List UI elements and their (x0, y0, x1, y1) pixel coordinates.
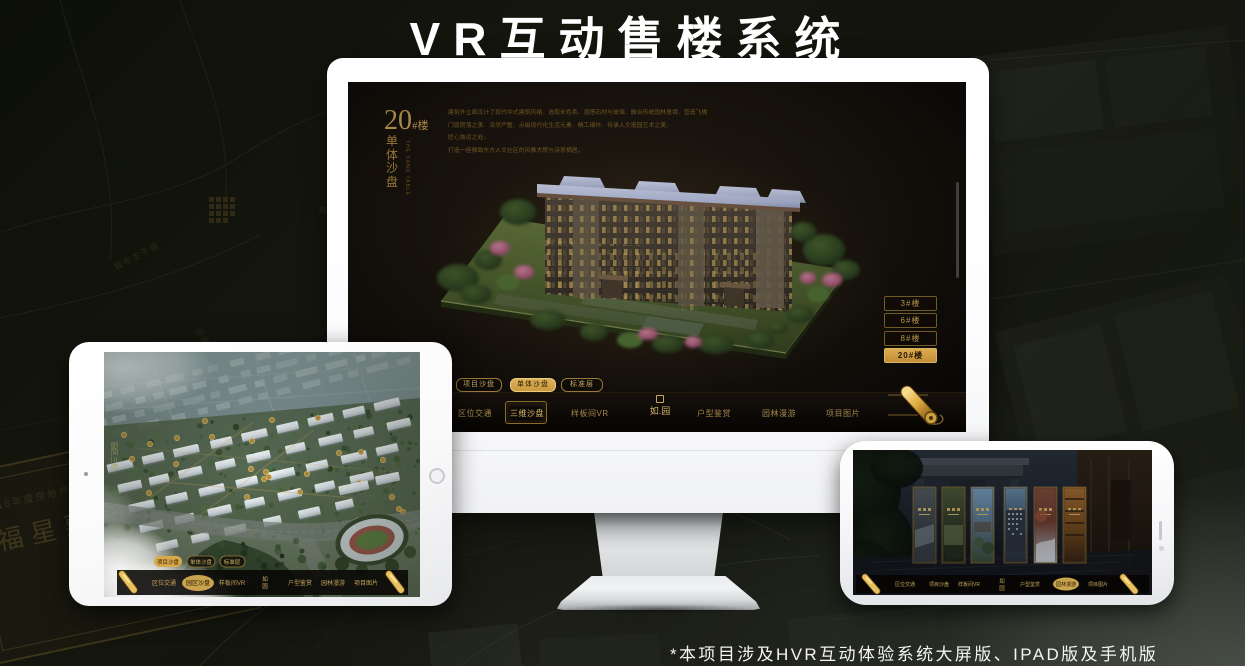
svg-text:样板间VR: 样板间VR (219, 579, 246, 587)
svg-text:园区沙盘: 园区沙盘 (186, 579, 210, 587)
svg-text:单体沙盘: 单体沙盘 (190, 558, 213, 566)
svg-text:样板间VR: 样板间VR (958, 581, 980, 588)
svg-text:园: 园 (262, 583, 268, 590)
svg-text:园: 园 (999, 585, 1005, 592)
svg-text:户型鉴赏: 户型鉴赏 (288, 579, 312, 587)
svg-text:项目图片: 项目图片 (354, 579, 378, 587)
svg-text:户型鉴赏: 户型鉴赏 (1020, 581, 1040, 588)
svg-text:项目沙盘: 项目沙盘 (929, 581, 949, 588)
svg-text:区位交通: 区位交通 (895, 581, 915, 588)
svg-text:如: 如 (262, 575, 268, 583)
svg-text:如: 如 (999, 577, 1005, 585)
svg-text:标准层: 标准层 (224, 558, 241, 566)
svg-text:区位交通: 区位交通 (152, 579, 176, 587)
svg-text:园林漫游: 园林漫游 (1056, 581, 1076, 588)
svg-text:园林漫游: 园林漫游 (321, 579, 345, 587)
svg-text:城市主干道: 城市主干道 (112, 239, 161, 271)
svg-text:项目图片: 项目图片 (1088, 581, 1108, 588)
svg-text:项目沙盘: 项目沙盘 (157, 558, 180, 566)
